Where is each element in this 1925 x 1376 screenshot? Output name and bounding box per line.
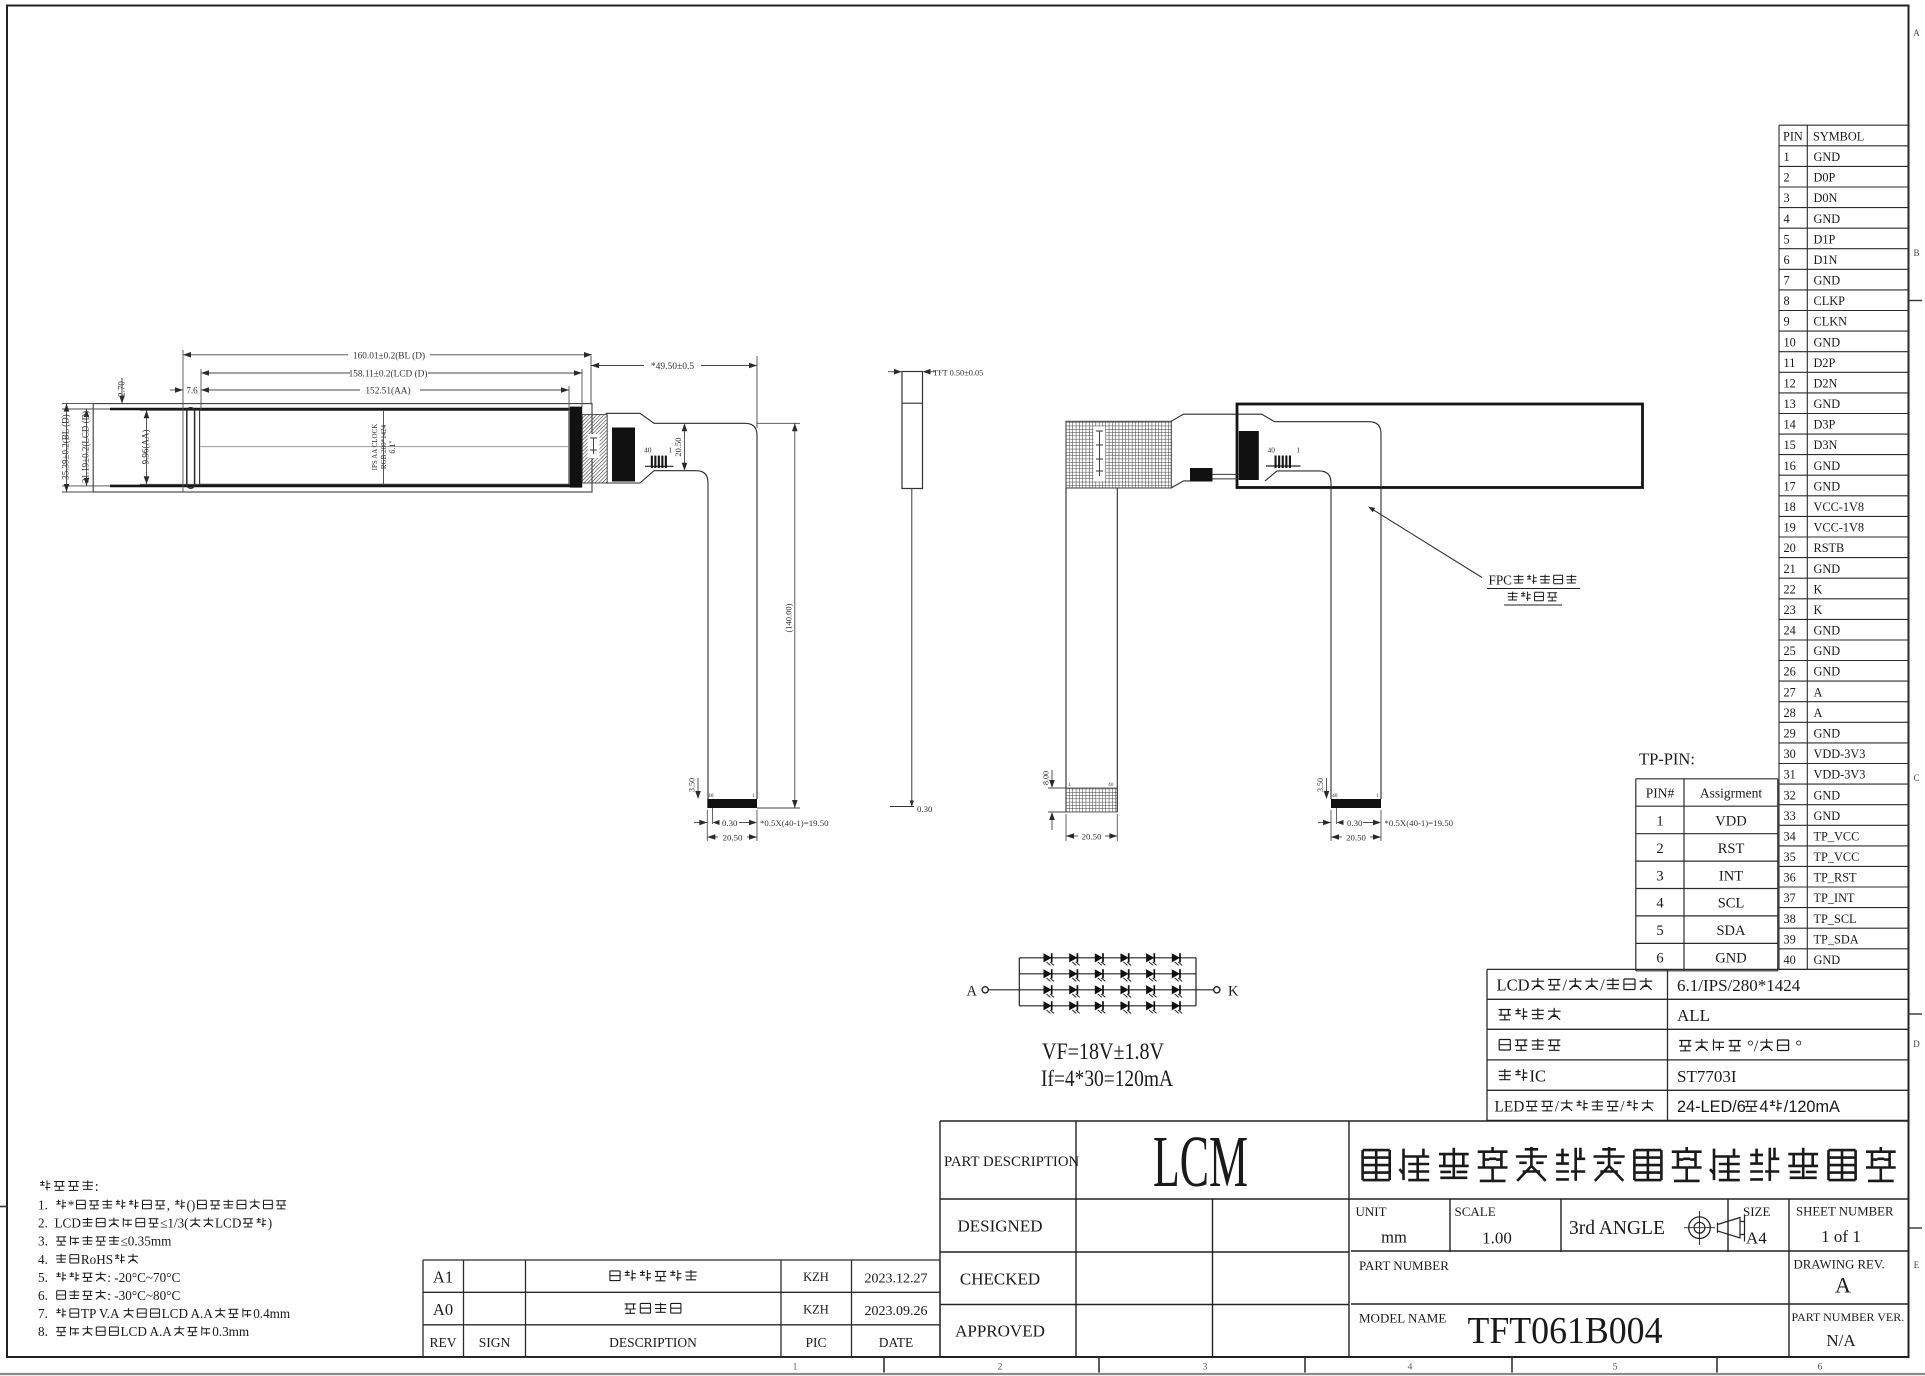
svg-text:1: 1 [1068, 782, 1071, 788]
svg-text:8.: 8. [38, 1324, 54, 1339]
svg-text:GND: GND [1814, 562, 1841, 576]
svg-text:A: A [967, 984, 978, 1000]
svg-text:GND: GND [1814, 788, 1841, 802]
svg-text:TP_SCL: TP_SCL [1814, 912, 1857, 926]
svg-text:4.: 4. [38, 1252, 54, 1267]
svg-text:GND: GND [1814, 459, 1841, 473]
svg-text:2: 2 [998, 1363, 1003, 1373]
svg-text:UNIT: UNIT [1356, 1204, 1387, 1219]
svg-text:/: / [1563, 976, 1568, 995]
svg-text:1: 1 [1784, 150, 1790, 164]
svg-text:20.50: 20.50 [1346, 833, 1366, 843]
svg-text:*0.5X(40-1)=19.50: *0.5X(40-1)=19.50 [760, 818, 829, 828]
svg-text:34: 34 [1784, 830, 1796, 844]
svg-text:35.39±0.2(BL (D): 35.39±0.2(BL (D) [61, 414, 71, 479]
svg-text:IPS AA CLOCK: IPS AA CLOCK [371, 424, 379, 471]
svg-text:MODEL NAME: MODEL NAME [1359, 1311, 1446, 1326]
svg-text:7.6: 7.6 [186, 386, 198, 396]
svg-text:TP_RST: TP_RST [1814, 871, 1858, 885]
svg-text:5: 5 [1656, 923, 1663, 939]
svg-text:CLKP: CLKP [1814, 294, 1846, 308]
svg-text:/120mA: /120mA [1784, 1098, 1840, 1116]
svg-text:30: 30 [1784, 747, 1796, 761]
svg-text:E: E [1914, 1260, 1920, 1270]
svg-text:1 of 1: 1 of 1 [1821, 1227, 1861, 1246]
svg-text:39: 39 [1784, 932, 1796, 946]
svg-text:SDA: SDA [1716, 923, 1746, 939]
svg-text:INT: INT [1719, 868, 1743, 884]
svg-text:/: / [1600, 976, 1605, 995]
svg-text:24-LED/6: 24-LED/6 [1677, 1098, 1746, 1116]
svg-text:(): () [187, 1198, 196, 1213]
svg-text:1: 1 [752, 793, 755, 799]
svg-text:26: 26 [1784, 665, 1796, 679]
svg-text:2: 2 [1656, 841, 1663, 857]
svg-text:5: 5 [1784, 232, 1790, 246]
svg-text:40: 40 [708, 793, 714, 799]
svg-text:8.00: 8.00 [1042, 771, 1051, 785]
svg-text:A4: A4 [1746, 1229, 1767, 1248]
svg-text:RST: RST [1718, 841, 1745, 857]
svg-text:4: 4 [1784, 212, 1790, 226]
svg-text:ALL: ALL [1677, 1006, 1710, 1025]
svg-text:158.11±0.2(LCD (D): 158.11±0.2(LCD (D) [349, 369, 428, 380]
svg-text:RSTB: RSTB [1814, 541, 1845, 555]
svg-text:PIN#: PIN# [1646, 785, 1675, 800]
svg-text:DATE: DATE [879, 1335, 914, 1350]
svg-text:mm: mm [1381, 1228, 1407, 1247]
svg-text:25: 25 [1784, 644, 1796, 658]
svg-text:GND: GND [1814, 953, 1841, 967]
svg-text:1: 1 [1297, 446, 1301, 455]
svg-text:35: 35 [1784, 850, 1796, 864]
svg-text:2.70: 2.70 [117, 381, 127, 397]
svg-text:TP_INT: TP_INT [1814, 891, 1855, 905]
svg-text:2. LCD: 2. LCD [38, 1216, 81, 1231]
svg-text:°: ° [1791, 1037, 1802, 1056]
svg-text:40: 40 [1784, 953, 1796, 967]
svg-text:6: 6 [1784, 253, 1790, 267]
svg-text:18: 18 [1784, 500, 1796, 514]
svg-text:,: , [167, 1198, 174, 1213]
svg-text:4: 4 [1759, 1098, 1768, 1116]
svg-text:DESCRIPTION: DESCRIPTION [609, 1335, 697, 1350]
svg-text:0.3mm: 0.3mm [212, 1324, 250, 1339]
svg-text:33: 33 [1784, 809, 1796, 823]
svg-text:20.50: 20.50 [673, 437, 683, 456]
svg-text:≤1/3(: ≤1/3( [160, 1216, 188, 1231]
svg-text:6.1": 6.1" [388, 440, 397, 453]
svg-text:LCD A.A: LCD A.A [121, 1324, 173, 1339]
svg-text:24: 24 [1784, 624, 1796, 638]
svg-text:23: 23 [1784, 603, 1796, 617]
svg-text:*: * [68, 1198, 75, 1213]
svg-text:TP_SDA: TP_SDA [1814, 932, 1859, 946]
svg-text:LCD: LCD [215, 1216, 241, 1231]
svg-text:4: 4 [1408, 1363, 1413, 1373]
svg-text:VDD: VDD [1715, 813, 1746, 829]
svg-text:28: 28 [1784, 706, 1796, 720]
svg-text:TP-PIN:: TP-PIN: [1639, 750, 1695, 769]
svg-text:GND: GND [1814, 624, 1841, 638]
svg-text:152.51(AA): 152.51(AA) [365, 386, 410, 397]
svg-text:3: 3 [1656, 868, 1663, 884]
svg-text:A: A [1835, 1273, 1851, 1298]
svg-text:6: 6 [1656, 951, 1663, 967]
svg-text:1: 1 [669, 446, 673, 455]
svg-text:A1: A1 [433, 1268, 453, 1287]
svg-text:D2P: D2P [1814, 356, 1836, 370]
svg-text:SIGN: SIGN [479, 1335, 511, 1350]
svg-text:9: 9 [1784, 315, 1790, 329]
svg-text:TFT 0.50±0.05: TFT 0.50±0.05 [933, 368, 983, 377]
svg-text:: -30°C~80°C: : -30°C~80°C [107, 1288, 180, 1303]
svg-text:A: A [1814, 706, 1823, 720]
svg-text:PIC: PIC [805, 1335, 826, 1350]
svg-text:TP_VCC: TP_VCC [1814, 850, 1860, 864]
svg-text:N/A: N/A [1826, 1331, 1856, 1350]
svg-text:29: 29 [1784, 727, 1796, 741]
svg-text:≤0.35mm: ≤0.35mm [121, 1234, 173, 1249]
svg-text:31: 31 [1784, 768, 1796, 782]
svg-text:3.50: 3.50 [688, 778, 697, 792]
svg-text:K: K [1814, 603, 1823, 617]
svg-text:10: 10 [1784, 335, 1796, 349]
svg-text:D0P: D0P [1814, 171, 1836, 185]
svg-text:1.: 1. [38, 1198, 54, 1213]
svg-text:3: 3 [1203, 1363, 1208, 1373]
svg-text:KZH: KZH [803, 1303, 829, 1317]
svg-text:32: 32 [1784, 788, 1796, 802]
svg-text:CLKN: CLKN [1814, 315, 1848, 329]
svg-text:PIN: PIN [1783, 129, 1803, 143]
svg-text:7.: 7. [38, 1306, 54, 1321]
svg-text:15: 15 [1784, 438, 1796, 452]
svg-text:31.19±0.2(LCD (D): 31.19±0.2(LCD (D) [81, 411, 91, 483]
svg-text:20.50: 20.50 [723, 833, 743, 843]
svg-text:2: 2 [1784, 171, 1790, 185]
svg-text:11: 11 [1784, 356, 1796, 370]
svg-text:0.30: 0.30 [722, 818, 738, 828]
svg-text:0.30: 0.30 [1347, 818, 1363, 828]
svg-text:RoHS: RoHS [81, 1252, 113, 1267]
svg-text:REV: REV [430, 1335, 457, 1350]
svg-text:160.01±0.2(BL (D): 160.01±0.2(BL (D) [353, 350, 425, 361]
svg-text:D1P: D1P [1814, 232, 1836, 246]
svg-text:TP V.A: TP V.A [81, 1306, 120, 1321]
svg-text:7: 7 [1784, 274, 1790, 288]
svg-text:LED: LED [1495, 1099, 1525, 1116]
svg-text:21: 21 [1784, 562, 1796, 576]
svg-text:16: 16 [1784, 459, 1796, 473]
svg-text:SHEET NUMBER: SHEET NUMBER [1796, 1205, 1894, 1219]
svg-text:VF=18V±1.8V: VF=18V±1.8V [1042, 1039, 1164, 1064]
svg-text:SCL: SCL [1718, 896, 1745, 912]
svg-text:A0: A0 [433, 1300, 453, 1319]
svg-text:GND: GND [1715, 951, 1746, 967]
svg-text:GND: GND [1814, 274, 1841, 288]
svg-text:GND: GND [1814, 665, 1841, 679]
svg-text:): ) [268, 1216, 272, 1231]
svg-text:PART DESCRIPTION: PART DESCRIPTION [944, 1154, 1080, 1170]
svg-text:9.96(AA): 9.96(AA) [141, 430, 151, 465]
svg-text:5.: 5. [38, 1270, 54, 1285]
svg-text:12: 12 [1784, 377, 1796, 391]
svg-text:If=4*30=120mA: If=4*30=120mA [1041, 1066, 1173, 1091]
svg-text:13: 13 [1784, 397, 1796, 411]
svg-text:/: / [1620, 1099, 1625, 1116]
svg-text:3.: 3. [38, 1234, 54, 1249]
svg-text:/: / [1555, 1099, 1560, 1116]
svg-text:TFT061B004: TFT061B004 [1468, 1310, 1663, 1352]
svg-text:40: 40 [644, 446, 652, 455]
svg-text:6: 6 [1818, 1363, 1823, 1373]
svg-text:14: 14 [1784, 418, 1796, 432]
svg-text:SIZE: SIZE [1743, 1204, 1771, 1219]
svg-text:*0.5X(40-1)=19.50: *0.5X(40-1)=19.50 [1385, 818, 1454, 828]
svg-text:GND: GND [1814, 644, 1841, 658]
svg-text:20.50: 20.50 [1082, 832, 1102, 842]
svg-text:GND: GND [1814, 212, 1841, 226]
svg-text:B: B [1913, 248, 1919, 258]
svg-text:VDD-3V3: VDD-3V3 [1814, 768, 1866, 782]
svg-text:0.4mm: 0.4mm [253, 1306, 291, 1321]
svg-text:17: 17 [1784, 479, 1796, 493]
svg-text:KZH: KZH [803, 1270, 829, 1284]
svg-text:(140.00): (140.00) [784, 603, 794, 632]
svg-text:D0N: D0N [1814, 191, 1838, 205]
svg-text:A: A [1814, 685, 1823, 699]
svg-text:D2N: D2N [1814, 377, 1838, 391]
svg-text:3.50: 3.50 [1316, 778, 1325, 792]
svg-text:6.1/IPS/280*1424: 6.1/IPS/280*1424 [1677, 976, 1801, 995]
svg-text:GND: GND [1814, 479, 1841, 493]
svg-text:TP_VCC: TP_VCC [1814, 830, 1860, 844]
svg-text:IC: IC [1530, 1067, 1547, 1086]
svg-text:2023.12.27: 2023.12.27 [865, 1272, 928, 1287]
svg-text:: -20°C~70°C: : -20°C~70°C [107, 1270, 180, 1285]
svg-text:40: 40 [1268, 446, 1276, 455]
svg-text:22: 22 [1784, 582, 1796, 596]
svg-text:1: 1 [793, 1363, 798, 1373]
svg-text:GND: GND [1814, 335, 1841, 349]
svg-text:20: 20 [1784, 541, 1796, 555]
svg-text:D: D [1913, 1039, 1920, 1049]
svg-text:RGB 280*1424: RGB 280*1424 [380, 424, 388, 469]
svg-text:1.00: 1.00 [1482, 1229, 1512, 1248]
svg-text:*49.50±0.5: *49.50±0.5 [651, 362, 694, 372]
svg-text:Assigrment: Assigrment [1700, 785, 1762, 800]
svg-text:LCD: LCD [1497, 976, 1530, 995]
svg-text:VCC-1V8: VCC-1V8 [1814, 521, 1865, 535]
svg-text:A: A [1913, 28, 1920, 38]
svg-text:DESIGNED: DESIGNED [958, 1217, 1043, 1236]
svg-text:0.30: 0.30 [917, 804, 933, 814]
svg-text:1: 1 [1656, 813, 1663, 829]
svg-text:VDD-3V3: VDD-3V3 [1814, 747, 1866, 761]
svg-text:GND: GND [1814, 397, 1841, 411]
svg-text:K: K [1228, 984, 1239, 1000]
svg-text:PART NUMBER VER.: PART NUMBER VER. [1792, 1310, 1905, 1324]
svg-text:LCD A.A: LCD A.A [162, 1306, 214, 1321]
svg-text:LCM: LCM [1153, 1121, 1248, 1202]
svg-text:6.: 6. [38, 1288, 54, 1303]
svg-text:GND: GND [1814, 809, 1841, 823]
svg-text:37: 37 [1784, 891, 1796, 905]
svg-text:APPROVED: APPROVED [955, 1322, 1045, 1341]
svg-text:SYMBOL: SYMBOL [1813, 129, 1864, 143]
svg-text:40: 40 [1332, 793, 1338, 799]
svg-text:4: 4 [1656, 896, 1664, 912]
svg-text:C: C [1913, 773, 1919, 783]
svg-text:ST7703I: ST7703I [1677, 1067, 1737, 1086]
svg-text:°: ° [1743, 1037, 1754, 1056]
svg-text:VCC-1V8: VCC-1V8 [1814, 500, 1865, 514]
svg-text:D1N: D1N [1814, 253, 1838, 267]
svg-text:D3N: D3N [1814, 438, 1838, 452]
svg-text:27: 27 [1784, 685, 1796, 699]
svg-text:FPC: FPC [1489, 573, 1513, 588]
svg-text:8: 8 [1784, 294, 1790, 308]
svg-text:CHECKED: CHECKED [960, 1270, 1040, 1289]
svg-text:PART NUMBER: PART NUMBER [1359, 1258, 1449, 1273]
svg-text:2023.09.26: 2023.09.26 [865, 1304, 928, 1319]
svg-text:D3P: D3P [1814, 418, 1836, 432]
svg-text:1: 1 [1376, 793, 1379, 799]
svg-text:GND: GND [1814, 727, 1841, 741]
svg-text:19: 19 [1784, 521, 1796, 535]
svg-text:SCALE: SCALE [1455, 1204, 1496, 1219]
svg-text:3: 3 [1784, 191, 1790, 205]
svg-text:38: 38 [1784, 912, 1796, 926]
svg-text:40: 40 [1108, 782, 1114, 788]
svg-text:DRAWING REV.: DRAWING REV. [1794, 1258, 1885, 1272]
svg-text:K: K [1814, 582, 1823, 596]
svg-text:GND: GND [1814, 150, 1841, 164]
svg-text:36: 36 [1784, 871, 1796, 885]
svg-text:3rd ANGLE: 3rd ANGLE [1569, 1218, 1665, 1239]
svg-text:5: 5 [1613, 1363, 1618, 1373]
svg-text::: : [95, 1179, 99, 1195]
svg-text:/: / [1754, 1037, 1759, 1056]
